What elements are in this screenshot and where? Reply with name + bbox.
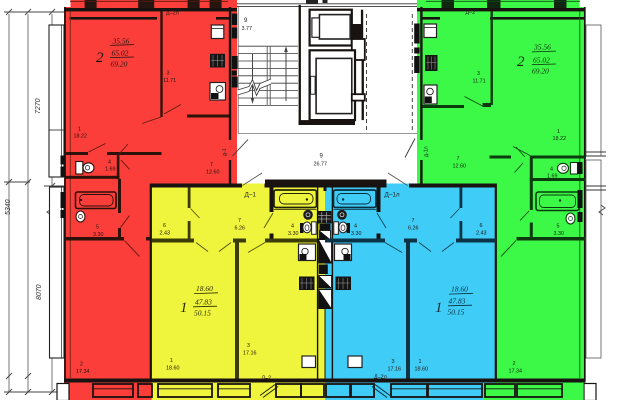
svg-text:Д–1л: Д–1л xyxy=(385,192,400,199)
svg-text:18.60: 18.60 xyxy=(451,285,468,294)
svg-text:3: 3 xyxy=(247,343,250,349)
svg-text:7: 7 xyxy=(238,218,241,224)
svg-text:1: 1 xyxy=(180,300,188,316)
svg-text:5340: 5340 xyxy=(5,199,12,215)
svg-text:3.30: 3.30 xyxy=(93,232,104,238)
svg-text:4: 4 xyxy=(108,160,111,166)
svg-text:26.77: 26.77 xyxy=(314,162,328,168)
svg-text:3: 3 xyxy=(167,71,170,77)
svg-text:2: 2 xyxy=(80,362,83,368)
svg-text:3.30: 3.30 xyxy=(351,231,362,237)
svg-text:Д–2: Д–2 xyxy=(466,10,476,16)
svg-text:1.69: 1.69 xyxy=(105,167,116,173)
svg-text:65.02: 65.02 xyxy=(533,56,550,65)
svg-text:Д–2л: Д–2л xyxy=(374,375,387,381)
svg-text:18.60: 18.60 xyxy=(415,367,429,373)
svg-text:50.15: 50.15 xyxy=(448,308,465,317)
svg-text:18.22: 18.22 xyxy=(553,136,567,142)
svg-text:2: 2 xyxy=(517,54,525,70)
svg-text:1: 1 xyxy=(78,127,81,133)
svg-text:2: 2 xyxy=(513,361,516,367)
svg-text:18.60: 18.60 xyxy=(196,284,213,293)
svg-text:4: 4 xyxy=(354,224,357,230)
svg-text:8070: 8070 xyxy=(36,284,43,300)
svg-text:4: 4 xyxy=(550,167,553,173)
svg-text:50.15: 50.15 xyxy=(194,309,211,318)
svg-text:18.60: 18.60 xyxy=(166,366,180,372)
svg-text:3.77: 3.77 xyxy=(242,26,253,32)
svg-text:6.26: 6.26 xyxy=(235,226,246,232)
svg-text:69.20: 69.20 xyxy=(111,60,128,69)
svg-text:35.56: 35.56 xyxy=(112,37,130,46)
svg-text:17.34: 17.34 xyxy=(509,369,523,375)
svg-text:3: 3 xyxy=(477,71,480,77)
svg-text:47.83: 47.83 xyxy=(449,297,466,306)
svg-text:11.71: 11.71 xyxy=(473,79,486,85)
svg-text:6: 6 xyxy=(163,223,166,229)
svg-text:1: 1 xyxy=(435,300,443,316)
svg-text:6.26: 6.26 xyxy=(408,226,419,232)
svg-text:17.16: 17.16 xyxy=(243,351,257,357)
svg-text:17.34: 17.34 xyxy=(76,369,90,375)
svg-text:3.30: 3.30 xyxy=(288,231,299,237)
svg-text:12.60: 12.60 xyxy=(453,164,467,170)
svg-text:1: 1 xyxy=(170,358,173,364)
svg-text:5: 5 xyxy=(96,225,99,231)
svg-text:3: 3 xyxy=(392,359,395,365)
svg-text:7: 7 xyxy=(210,162,213,168)
svg-text:д-1л: д-1л xyxy=(424,146,430,157)
svg-text:Д–2л: Д–2л xyxy=(166,11,179,17)
svg-text:17.16: 17.16 xyxy=(388,367,402,373)
svg-text:7270: 7270 xyxy=(35,98,42,114)
svg-text:7: 7 xyxy=(457,156,460,162)
svg-text:11.71: 11.71 xyxy=(163,78,176,84)
svg-text:1: 1 xyxy=(419,359,422,365)
svg-text:6: 6 xyxy=(480,223,483,229)
svg-text:1.69: 1.69 xyxy=(547,174,558,180)
svg-text:2: 2 xyxy=(96,50,104,66)
svg-text:Д–2: Д–2 xyxy=(262,376,272,382)
svg-text:18.22: 18.22 xyxy=(74,134,88,140)
svg-text:3.30: 3.30 xyxy=(554,231,565,237)
svg-text:1: 1 xyxy=(557,129,560,135)
svg-text:12.60: 12.60 xyxy=(206,170,220,176)
svg-text:2.43: 2.43 xyxy=(476,231,487,237)
svg-text:2.43: 2.43 xyxy=(160,231,171,237)
svg-text:35.56: 35.56 xyxy=(533,43,551,52)
svg-text:д-1: д-1 xyxy=(222,148,228,156)
svg-text:69.20: 69.20 xyxy=(532,67,549,76)
svg-text:4: 4 xyxy=(291,224,294,230)
svg-text:Д–1: Д–1 xyxy=(245,192,257,199)
svg-text:65.02: 65.02 xyxy=(112,49,129,58)
svg-text:47.83: 47.83 xyxy=(195,298,212,307)
svg-text:5: 5 xyxy=(557,224,560,230)
svg-text:7: 7 xyxy=(412,218,415,224)
